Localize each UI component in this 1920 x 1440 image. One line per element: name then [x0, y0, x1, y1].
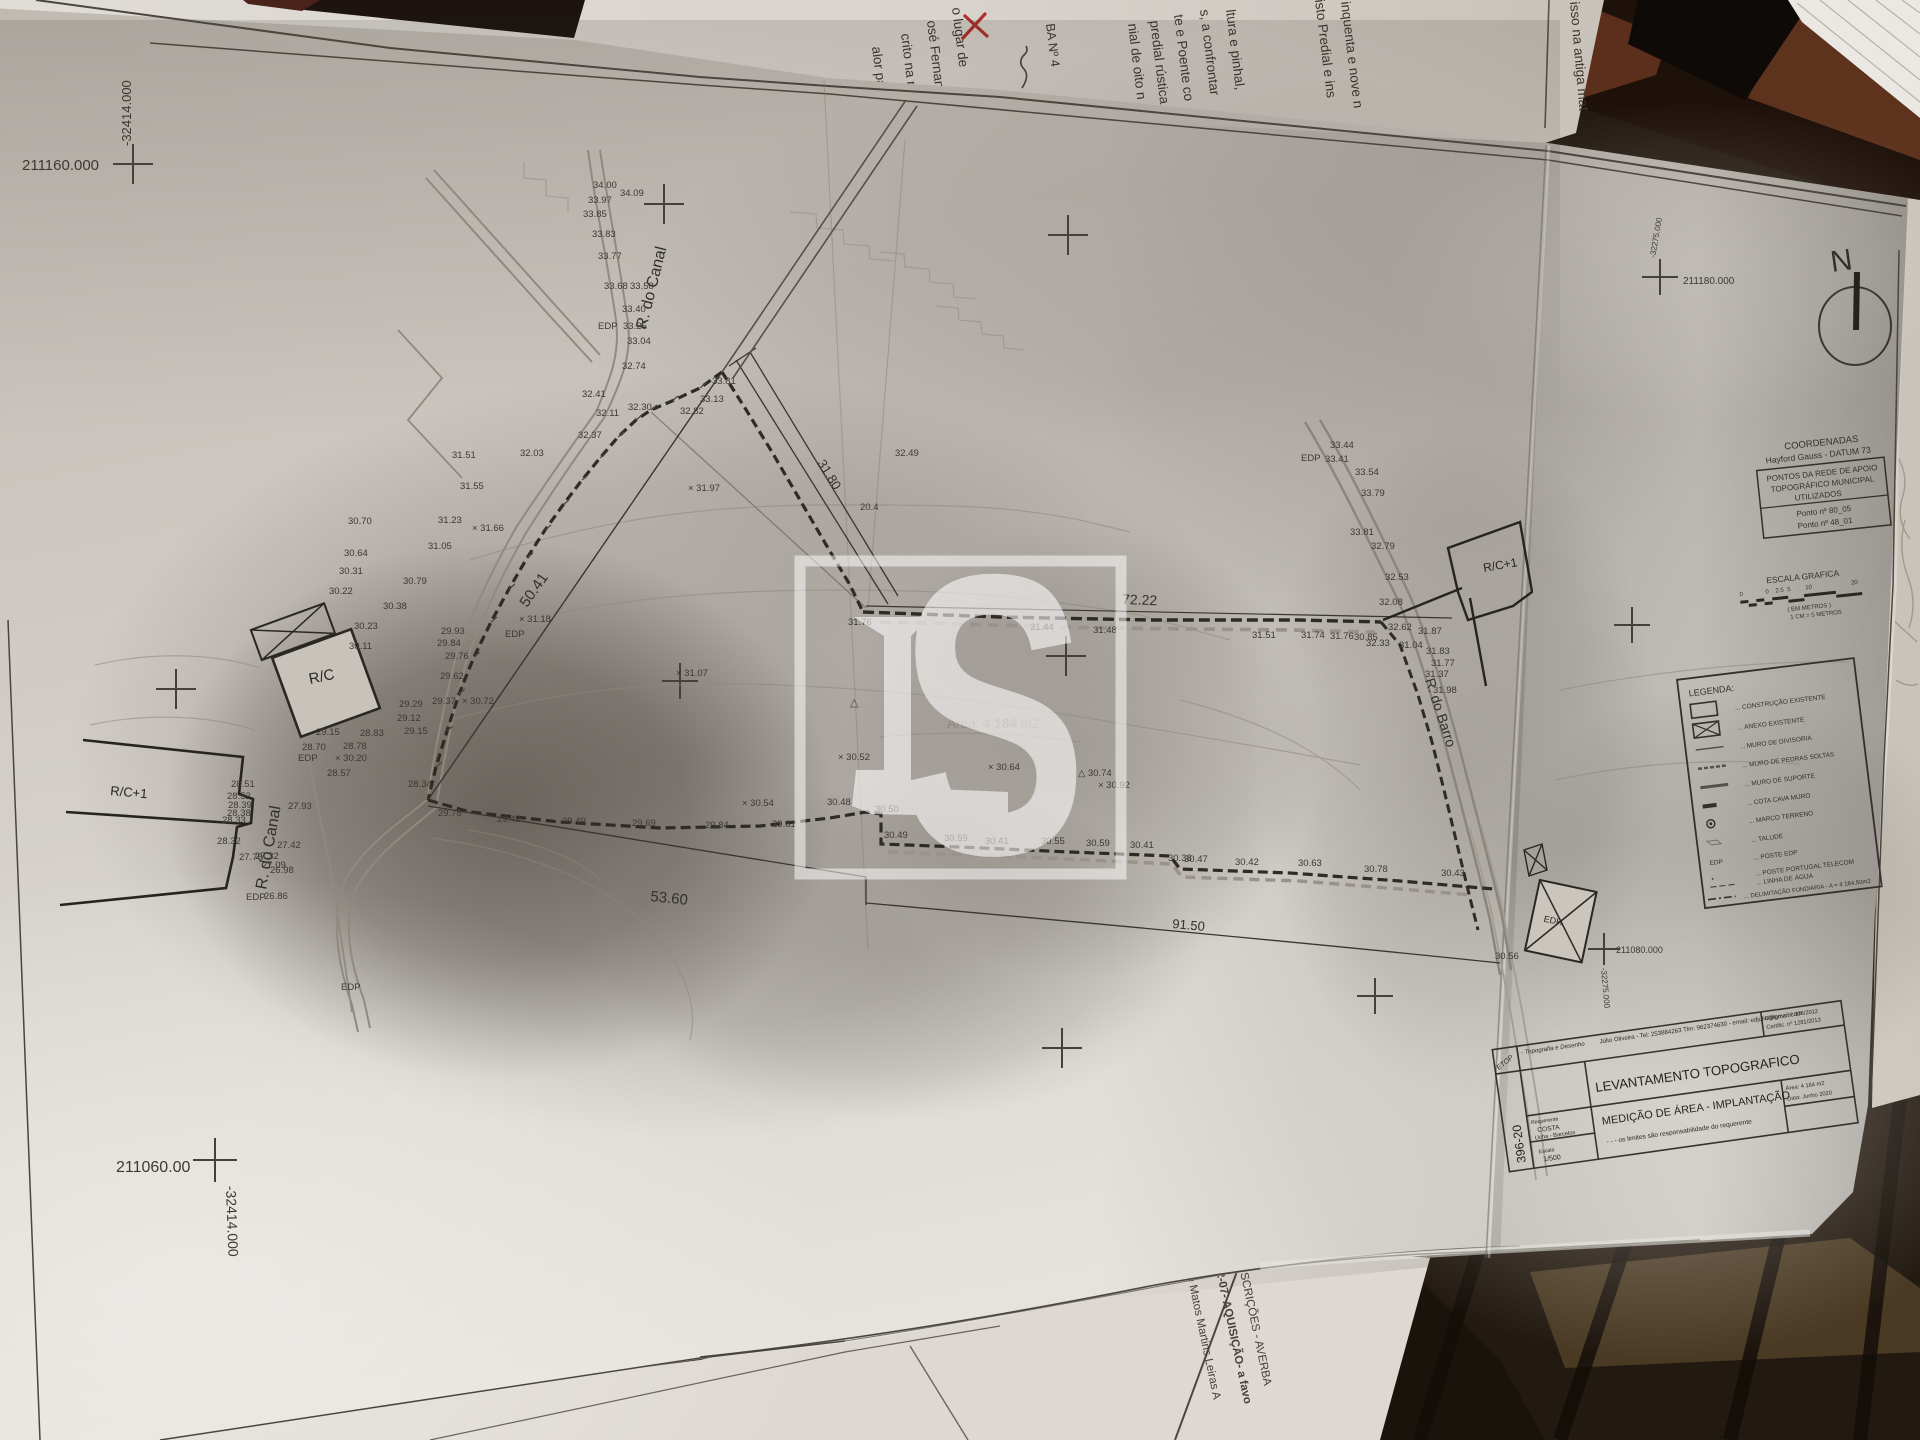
svg-text:30.48: 30.48: [827, 797, 851, 808]
svg-text:× 30.72: × 30.72: [462, 696, 494, 707]
svg-text:33.68: 33.68: [604, 281, 628, 292]
svg-text:-32414.000: -32414.000: [119, 80, 134, 146]
svg-text:33.79: 33.79: [1361, 488, 1385, 499]
svg-text:29.12: 29.12: [397, 713, 421, 724]
svg-text:32.82: 32.82: [680, 406, 704, 417]
svg-text:× 31.66: × 31.66: [472, 523, 504, 534]
svg-text:33.81: 33.81: [1350, 527, 1374, 538]
svg-text:29.81: 29.81: [772, 819, 796, 830]
svg-text:33.58: 33.58: [630, 281, 654, 292]
svg-text:33.25: 33.25: [623, 321, 647, 332]
svg-text:30.43: 30.43: [1441, 868, 1465, 879]
svg-text:28.33: 28.33: [222, 815, 246, 826]
svg-text:EDP: EDP: [298, 753, 318, 764]
svg-text:-32414.000: -32414.000: [223, 1186, 241, 1258]
svg-text:29.76: 29.76: [445, 651, 469, 662]
svg-text:28.78: 28.78: [343, 741, 367, 752]
svg-text:211180.000: 211180.000: [1683, 276, 1735, 287]
svg-text:30.42: 30.42: [1235, 857, 1259, 868]
svg-text:34.09: 34.09: [620, 188, 644, 199]
svg-text:× 30.54: × 30.54: [742, 798, 774, 809]
svg-text:10: 10: [1805, 585, 1813, 592]
svg-text:28.57: 28.57: [327, 768, 351, 779]
svg-text:33.97: 33.97: [588, 195, 612, 206]
svg-text:26.86: 26.86: [264, 891, 288, 902]
svg-text:30.63: 30.63: [1298, 858, 1322, 869]
svg-text:30.11: 30.11: [349, 641, 372, 652]
svg-text:EDP: EDP: [598, 321, 618, 332]
svg-text:32.62: 32.62: [1388, 622, 1412, 633]
svg-text:27.42: 27.42: [277, 840, 301, 851]
svg-text:29.49: 29.49: [562, 816, 586, 827]
svg-text:29.42: 29.42: [497, 814, 521, 825]
svg-text:31.87: 31.87: [1418, 626, 1442, 637]
svg-text:32.30: 32.30: [628, 402, 652, 413]
svg-text:33.83: 33.83: [592, 229, 616, 240]
svg-text:20: 20: [1851, 580, 1859, 587]
svg-text:31.05: 31.05: [428, 541, 452, 552]
svg-text:211060.00: 211060.00: [116, 1159, 191, 1176]
svg-text:33.41: 33.41: [1325, 454, 1349, 465]
svg-text:29.84: 29.84: [437, 638, 461, 649]
svg-text:30.41: 30.41: [1130, 840, 1154, 851]
svg-text:28.83: 28.83: [360, 728, 384, 739]
svg-text:29.15: 29.15: [404, 726, 428, 737]
svg-text:29.69: 29.69: [632, 818, 656, 829]
svg-text:30.23: 30.23: [354, 621, 378, 632]
svg-text:30.56: 30.56: [1495, 951, 1519, 962]
svg-text:31.04: 31.04: [1399, 640, 1423, 651]
svg-text:30.31: 30.31: [339, 566, 363, 577]
svg-text:27.93: 27.93: [288, 801, 312, 812]
svg-text:30.47: 30.47: [1184, 854, 1208, 865]
svg-text:33.40: 33.40: [622, 304, 646, 315]
svg-text:2.5: 2.5: [1775, 588, 1785, 595]
svg-text:32.41: 32.41: [582, 389, 606, 400]
svg-text:EDP: EDP: [1301, 453, 1321, 464]
svg-text:32.49: 32.49: [895, 448, 919, 459]
svg-text:29.15: 29.15: [316, 727, 340, 738]
svg-text:31.48: 31.48: [1093, 625, 1117, 636]
svg-text:S: S: [898, 491, 1087, 938]
svg-text:× 31.18: × 31.18: [519, 614, 551, 625]
svg-text:29.84: 29.84: [705, 820, 729, 831]
svg-text:31.55: 31.55: [460, 481, 484, 492]
svg-text:31.74: 31.74: [1301, 630, 1325, 641]
svg-text:32.33: 32.33: [1366, 638, 1390, 649]
svg-text:211160.000: 211160.000: [22, 157, 99, 174]
svg-text:31.77: 31.77: [1431, 658, 1455, 669]
svg-text:33.81: 33.81: [712, 376, 736, 387]
svg-text:31.23: 31.23: [438, 515, 462, 526]
svg-text:33.85: 33.85: [583, 209, 607, 220]
svg-text:30.70: 30.70: [348, 516, 372, 527]
svg-text:91.50: 91.50: [1172, 916, 1206, 934]
svg-text:32.79: 32.79: [1371, 541, 1395, 552]
svg-text:32.03: 32.03: [520, 448, 544, 459]
svg-text:× 31.97: × 31.97: [688, 483, 720, 494]
svg-text:26.98: 26.98: [270, 865, 294, 876]
svg-text:30.64: 30.64: [344, 548, 368, 559]
svg-text:30.22: 30.22: [329, 586, 353, 597]
svg-text:EDP: EDP: [246, 892, 266, 903]
svg-text:32.11: 32.11: [596, 408, 619, 419]
svg-text:× 30.52: × 30.52: [838, 752, 870, 763]
svg-text:72.22: 72.22: [1122, 591, 1158, 608]
svg-text:211080.000: 211080.000: [1616, 945, 1663, 955]
svg-text:30.59: 30.59: [1086, 838, 1110, 849]
svg-text:32.37: 32.37: [578, 430, 602, 441]
svg-text:31.51: 31.51: [1252, 630, 1276, 641]
svg-text:33.04: 33.04: [627, 336, 651, 347]
svg-text:31.98: 31.98: [1433, 685, 1457, 696]
svg-text:31.51: 31.51: [452, 450, 476, 461]
svg-text:EDP: EDP: [341, 982, 361, 993]
svg-text:30.79: 30.79: [403, 576, 427, 587]
svg-text:30.38: 30.38: [383, 601, 407, 612]
svg-text:N: N: [1828, 243, 1854, 279]
svg-text:31.37: 31.37: [1425, 669, 1449, 680]
svg-text:30.78: 30.78: [1364, 864, 1388, 875]
svg-text:29.62: 29.62: [440, 671, 464, 682]
svg-text:31.76: 31.76: [1330, 631, 1354, 642]
svg-text:34.00: 34.00: [593, 180, 617, 191]
svg-text:32.74: 32.74: [622, 361, 646, 372]
svg-text:28.34: 28.34: [408, 779, 432, 790]
svg-text:33.54: 33.54: [1355, 467, 1379, 478]
svg-text:33.77: 33.77: [598, 251, 622, 262]
svg-text:29.37: 29.37: [432, 696, 456, 707]
svg-text:△: △: [850, 697, 859, 709]
svg-text:33.13: 33.13: [700, 394, 724, 405]
svg-text:31.83: 31.83: [1426, 646, 1450, 657]
svg-text:× 31.07: × 31.07: [676, 668, 708, 679]
svg-text:29.29: 29.29: [399, 699, 423, 710]
svg-text:29.78: 29.78: [438, 808, 462, 819]
svg-text:28.51: 28.51: [231, 779, 255, 790]
svg-text:32.53: 32.53: [1385, 572, 1409, 583]
svg-text:32.08: 32.08: [1379, 597, 1403, 608]
svg-text:20.4: 20.4: [860, 502, 879, 513]
svg-text:EDP: EDP: [505, 629, 525, 640]
svg-text:× 30.20: × 30.20: [335, 753, 367, 764]
svg-text:28.32: 28.32: [217, 836, 241, 847]
svg-text:29.93: 29.93: [441, 626, 465, 637]
svg-text:28.70: 28.70: [302, 742, 326, 753]
svg-text:33.44: 33.44: [1330, 440, 1354, 451]
